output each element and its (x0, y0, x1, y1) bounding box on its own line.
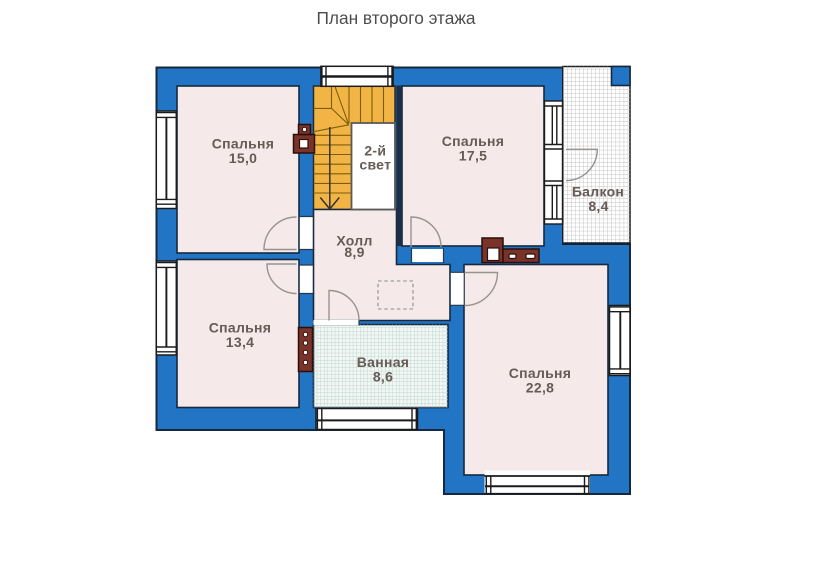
svg-text:15,0: 15,0 (229, 150, 257, 166)
svg-text:8,9: 8,9 (344, 244, 364, 260)
svg-text:План второго этажа: План второго этажа (316, 8, 475, 28)
svg-text:8,4: 8,4 (588, 198, 608, 214)
svg-text:13,4: 13,4 (226, 334, 254, 350)
svg-text:8,6: 8,6 (373, 369, 393, 385)
svg-text:22,8: 22,8 (526, 380, 554, 396)
svg-text:17,5: 17,5 (459, 148, 487, 164)
svg-text:свет: свет (359, 156, 391, 172)
